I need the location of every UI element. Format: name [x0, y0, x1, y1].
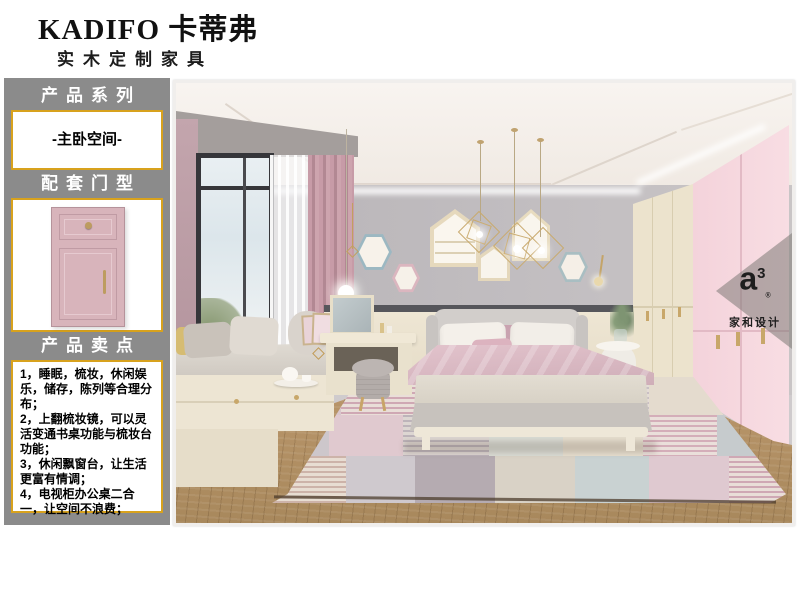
bed-shadow — [404, 441, 656, 453]
section-title-product-series: 产品系列 — [4, 85, 170, 107]
series-value-box: -主卧空间- — [11, 110, 163, 170]
bed-leg — [626, 434, 635, 451]
pendant-cord — [346, 129, 347, 287]
door-handle-icon — [103, 270, 106, 294]
brand-subtitle: 实木定制家具 — [57, 45, 213, 70]
bed-leg — [422, 435, 430, 450]
rug-cell — [575, 456, 649, 503]
teacup-icon — [302, 375, 311, 382]
pendant-cord — [540, 141, 541, 237]
ceiling-mount-icon — [477, 140, 484, 144]
ceiling-mount-icon — [511, 128, 518, 132]
bedroom-photo: a3® 家和设计 — [173, 80, 795, 526]
a3-logo: a3® — [720, 259, 790, 312]
window-mullion — [201, 186, 269, 190]
pendant-cord — [514, 131, 515, 233]
selling-point: 3，休闲飘窗台，让生活更富有情调； — [20, 457, 154, 487]
wardrobe-cream — [633, 184, 693, 394]
seat-pillow — [229, 316, 279, 356]
rug-cell — [495, 456, 575, 503]
window — [196, 153, 274, 339]
perfume-bottle-icon — [387, 326, 392, 333]
bed-frame-rail — [414, 427, 648, 437]
wardrobe-handle-icon — [761, 328, 765, 344]
wardrobe-handle-icon — [662, 309, 665, 319]
wardrobe-handle-icon — [736, 332, 740, 346]
hanging-decor-icon — [352, 203, 353, 249]
page: KADIFO 卡蒂弗 实木定制家具 产品系列 -主卧空间- 配套门型 产品卖点 … — [0, 0, 800, 600]
nightstand-top — [596, 341, 640, 351]
wardrobe-handle-icon — [716, 335, 720, 349]
door-panel — [59, 248, 117, 320]
pendant-cord — [480, 143, 481, 221]
tea-tray — [274, 379, 318, 387]
window-mullion — [243, 158, 246, 334]
pendant-bulb-icon — [513, 245, 521, 253]
drawer-knob-icon — [294, 395, 299, 400]
selling-points-box: 1，睡眠，梳妆，休闲娱乐，储存，陈列等合理分布； 2，上翻梳妆镜，可以灵活变通书… — [11, 360, 163, 513]
pouf-stool-top — [352, 359, 394, 377]
selling-point: 1，睡眠，梳妆，休闲娱乐，储存，陈列等合理分布； — [20, 367, 154, 412]
drawer-knob-icon — [234, 399, 239, 404]
vanity-mirror — [330, 295, 374, 335]
sconce-shade-icon — [594, 277, 603, 286]
bed-sheet — [414, 375, 648, 407]
door-knob-icon — [85, 222, 92, 229]
window-seat-lower — [176, 429, 278, 487]
selling-point: 2，上翻梳妆镜，可以灵活变通书桌功能与梳妆台功能； — [20, 412, 154, 457]
brand-title: KADIFO 卡蒂弗 — [38, 6, 258, 48]
wardrobe-handle-icon — [646, 311, 649, 321]
teapot-icon — [282, 367, 298, 381]
studio-name: 家和设计 — [720, 314, 790, 330]
pendant-bulb-icon — [538, 247, 545, 254]
rug-cell — [329, 415, 403, 457]
watermark: a3® 家和设计 — [720, 259, 790, 330]
pendant-bulb-icon — [476, 231, 483, 238]
section-title-selling-points: 产品卖点 — [4, 335, 170, 357]
selling-point: 4，电视柜办公桌二合一，让空间不浪费； — [20, 487, 154, 517]
sidebar: 产品系列 -主卧空间- 配套门型 产品卖点 1，睡眠，梳妆，休闲娱乐，储存，陈列… — [4, 78, 170, 525]
cabinet-door-graphic — [51, 207, 125, 327]
rug-cell — [649, 456, 729, 503]
vanity-desk-top — [320, 333, 416, 343]
wardrobe-handle-icon — [678, 307, 681, 317]
seat-pillow — [183, 321, 233, 358]
perfume-bottle-icon — [380, 323, 384, 333]
section-title-door-type: 配套门型 — [4, 173, 170, 195]
ceiling-mount-icon — [537, 138, 544, 142]
door-type-box — [11, 198, 163, 332]
